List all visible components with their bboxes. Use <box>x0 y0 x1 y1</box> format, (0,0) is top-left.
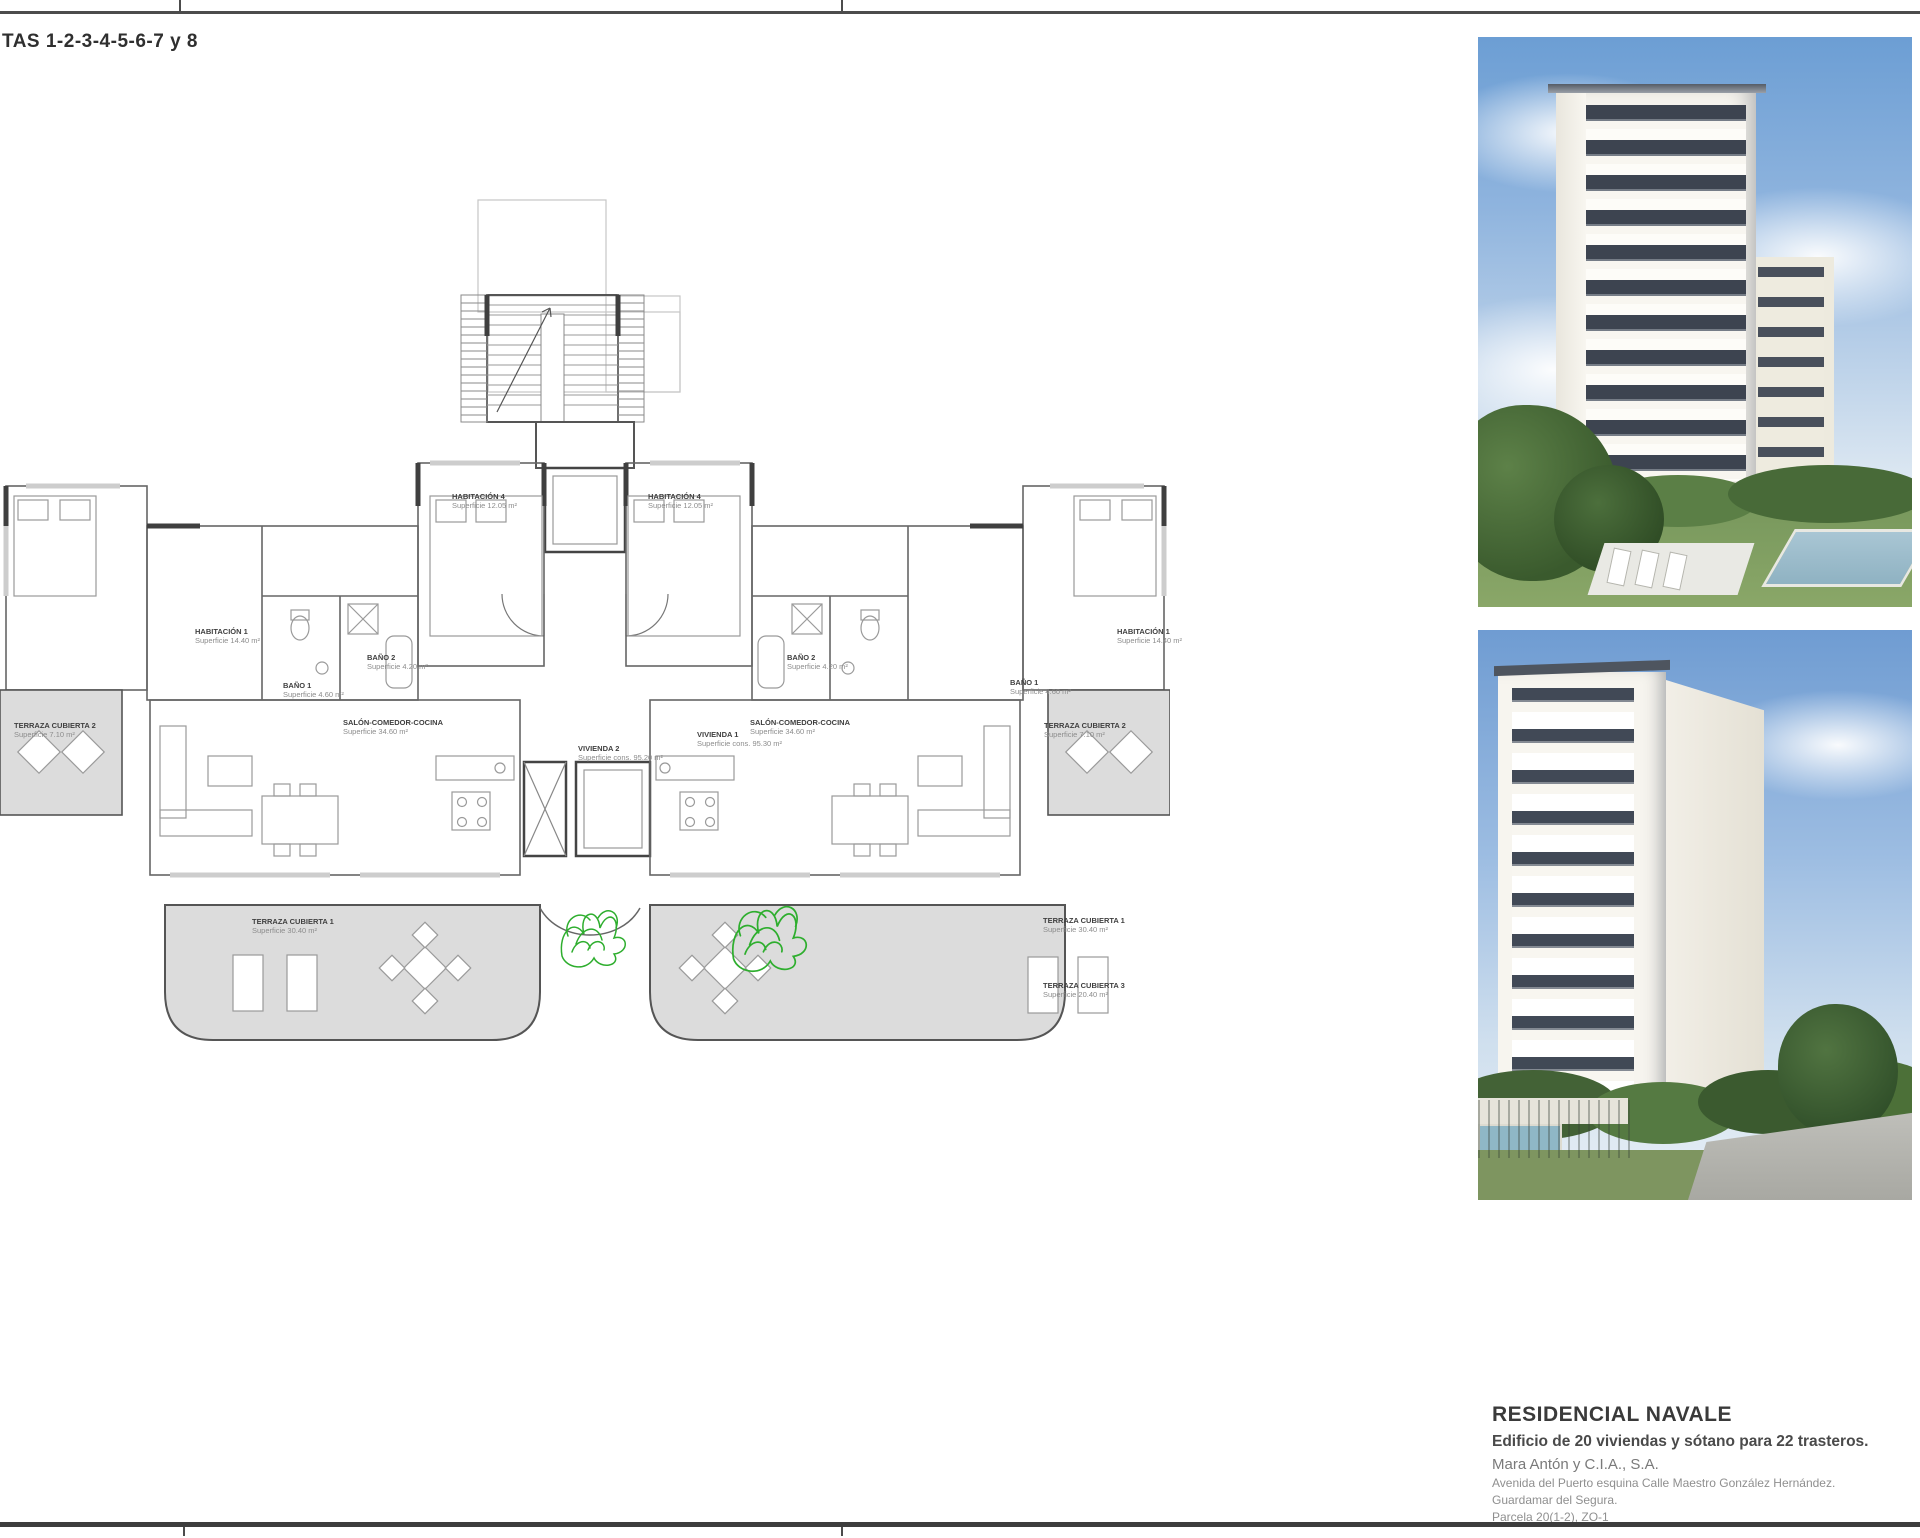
top-border-tick <box>841 0 843 11</box>
bottom-border-tick <box>183 1527 185 1536</box>
fence <box>1478 1100 1638 1158</box>
building-tower-right-face <box>1666 680 1764 1112</box>
project-description: Edificio de 20 viviendas y sótano para 2… <box>1492 1433 1912 1451</box>
tree <box>1778 1004 1898 1136</box>
roofline <box>1548 84 1766 93</box>
balcony-bands <box>1586 105 1746 481</box>
floor-plan <box>0 196 1170 1056</box>
project-developer: Mara Antón y C.I.A., S.A. <box>1492 1456 1912 1473</box>
bottom-border-tick <box>841 1527 843 1536</box>
top-border-line <box>0 11 1920 14</box>
top-border-tick <box>179 0 181 11</box>
terraces <box>0 690 1170 1040</box>
elevator-core <box>502 422 668 856</box>
wall-accents <box>6 295 1164 526</box>
plant-icon <box>561 911 625 967</box>
render-photo-bottom <box>1478 630 1912 1200</box>
balcony-bands <box>1512 688 1634 1102</box>
project-address-line2: Guardamar del Segura. <box>1492 1493 1912 1507</box>
floor-plan-drawing <box>0 196 1170 1056</box>
project-info: RESIDENCIAL NAVALE Edificio de 20 vivien… <box>1492 1403 1912 1524</box>
hedge <box>1728 465 1912 523</box>
building-tower-left-face <box>1498 672 1666 1112</box>
project-name: RESIDENCIAL NAVALE <box>1492 1403 1912 1427</box>
sheet-title: TAS 1-2-3-4-5-6-7 y 8 <box>2 31 198 53</box>
window-band <box>1758 267 1824 477</box>
bottom-border-line <box>0 1522 1920 1527</box>
building-annex <box>1750 257 1834 489</box>
render-photo-top <box>1478 37 1912 607</box>
project-address-line1: Avenida del Puerto esquina Calle Maestro… <box>1492 1476 1912 1490</box>
